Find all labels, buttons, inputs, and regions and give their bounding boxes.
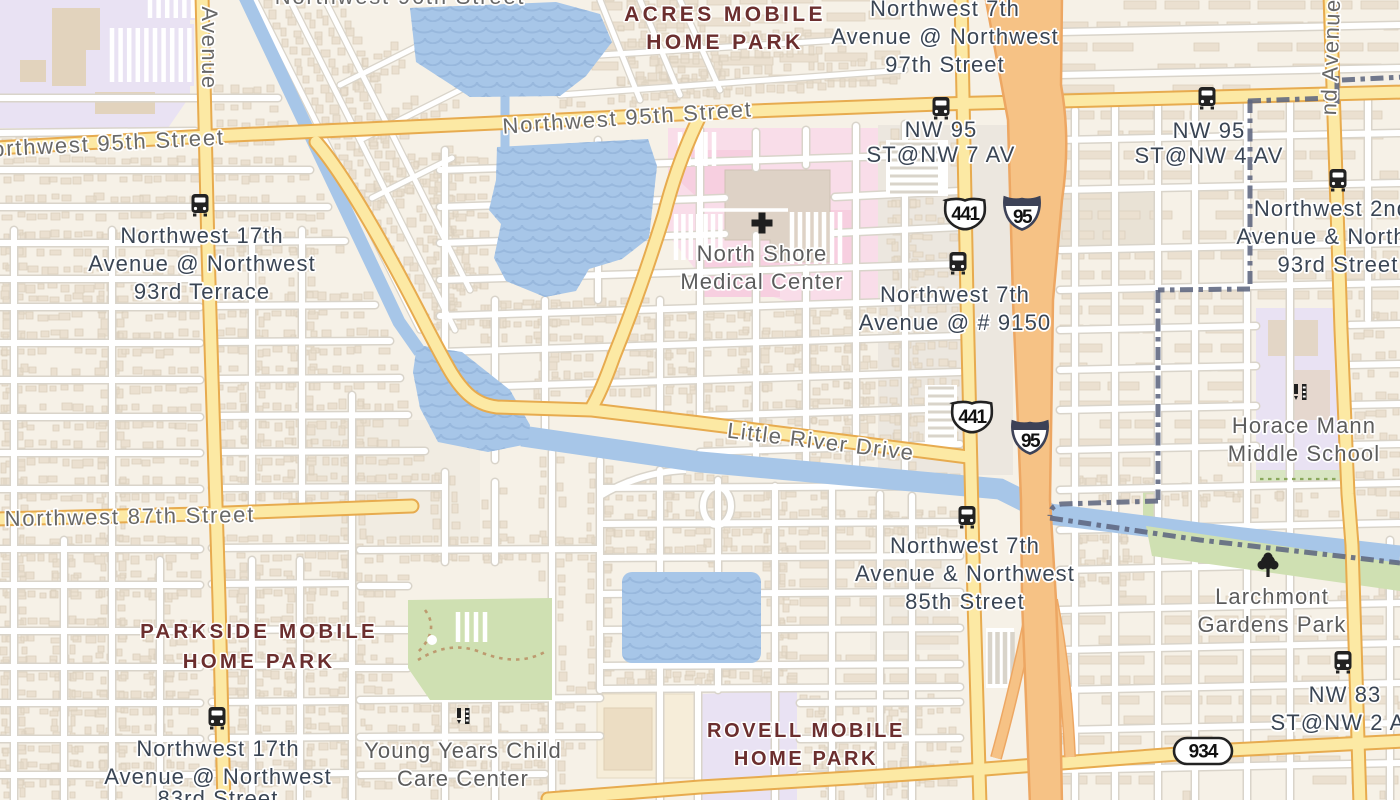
- svg-text:ST@NW 4 AV: ST@NW 4 AV: [1134, 143, 1283, 168]
- svg-text:ACRES MOBILE: ACRES MOBILE: [624, 3, 826, 26]
- svg-text:Northwest 87th Street: Northwest 87th Street: [4, 502, 255, 531]
- svg-text:HOME PARK: HOME PARK: [734, 748, 878, 770]
- svg-text:Young Years Child: Young Years Child: [364, 738, 562, 763]
- svg-text:NW 95: NW 95: [905, 117, 978, 142]
- svg-text:93rd Terrace: 93rd Terrace: [134, 279, 270, 304]
- svg-text:95: 95: [1013, 207, 1033, 228]
- svg-text:ST@NW 7 AV: ST@NW 7 AV: [866, 142, 1015, 167]
- svg-text:Avenue: Avenue: [197, 6, 222, 89]
- svg-text:Horace Mann: Horace Mann: [1232, 413, 1376, 438]
- svg-text:93rd Street: 93rd Street: [1278, 252, 1399, 277]
- svg-text:Avenue & Northw: Avenue & Northw: [1236, 224, 1400, 249]
- svg-text:Northwest 7th: Northwest 7th: [870, 0, 1020, 21]
- svg-text:ST@NW 2 AV: ST@NW 2 AV: [1270, 710, 1400, 735]
- svg-text:95: 95: [1021, 431, 1041, 452]
- svg-text:Avenue @ Northwest: Avenue @ Northwest: [88, 251, 316, 276]
- svg-text:934: 934: [1189, 742, 1219, 763]
- svg-text:HOME PARK: HOME PARK: [183, 650, 336, 673]
- svg-text:nd Avenue: nd Avenue: [1316, 0, 1345, 116]
- svg-text:Middle School: Middle School: [1228, 441, 1381, 466]
- svg-text:Avenue @ # 9150: Avenue @ # 9150: [859, 310, 1052, 335]
- svg-text:Avenue & Northwest: Avenue & Northwest: [855, 561, 1075, 586]
- svg-text:441: 441: [958, 407, 987, 428]
- svg-text:Larchmont: Larchmont: [1215, 584, 1329, 609]
- svg-text:North Shore: North Shore: [697, 241, 828, 266]
- svg-text:85th Street: 85th Street: [905, 589, 1025, 614]
- svg-text:Gardens Park: Gardens Park: [1198, 612, 1347, 637]
- svg-text:441: 441: [951, 204, 980, 225]
- svg-text:83rd Street: 83rd Street: [158, 786, 279, 800]
- svg-text:Northwest 7th: Northwest 7th: [880, 282, 1030, 307]
- svg-text:Care Center: Care Center: [397, 766, 529, 791]
- svg-text:Northwest 17th: Northwest 17th: [120, 223, 283, 248]
- svg-text:Northwest 7th: Northwest 7th: [890, 533, 1040, 558]
- svg-text:Northwest 17th: Northwest 17th: [136, 736, 299, 761]
- svg-text:ROVELL MOBILE: ROVELL MOBILE: [707, 720, 905, 742]
- svg-text:Medical Center: Medical Center: [680, 269, 843, 294]
- svg-text:PARKSIDE MOBILE: PARKSIDE MOBILE: [140, 620, 378, 643]
- svg-text:Northwest 2nd: Northwest 2nd: [1254, 196, 1400, 221]
- svg-text:Avenue @ Northwest: Avenue @ Northwest: [831, 24, 1059, 49]
- svg-text:NW 95: NW 95: [1173, 118, 1246, 143]
- svg-text:NW 83: NW 83: [1309, 682, 1382, 707]
- svg-text:Northwest 96th Street: Northwest 96th Street: [275, 0, 526, 9]
- svg-text:97th Street: 97th Street: [885, 52, 1005, 77]
- svg-text:HOME PARK: HOME PARK: [646, 31, 803, 54]
